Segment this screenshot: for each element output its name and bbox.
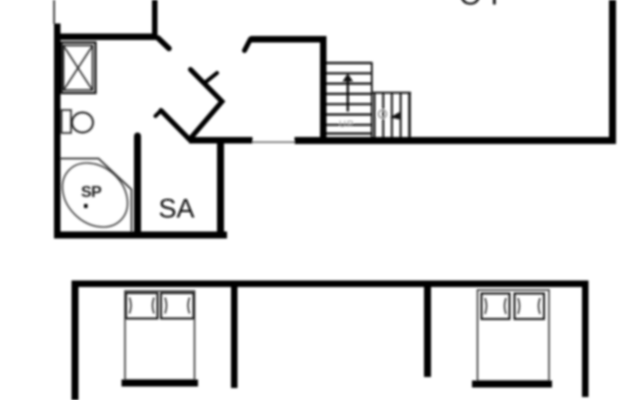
svg-text:UP: UP [339, 119, 355, 130]
svg-text:SP: SP [81, 184, 102, 201]
svg-text:SA: SA [159, 194, 195, 224]
svg-text:OT: OT [459, 0, 507, 12]
